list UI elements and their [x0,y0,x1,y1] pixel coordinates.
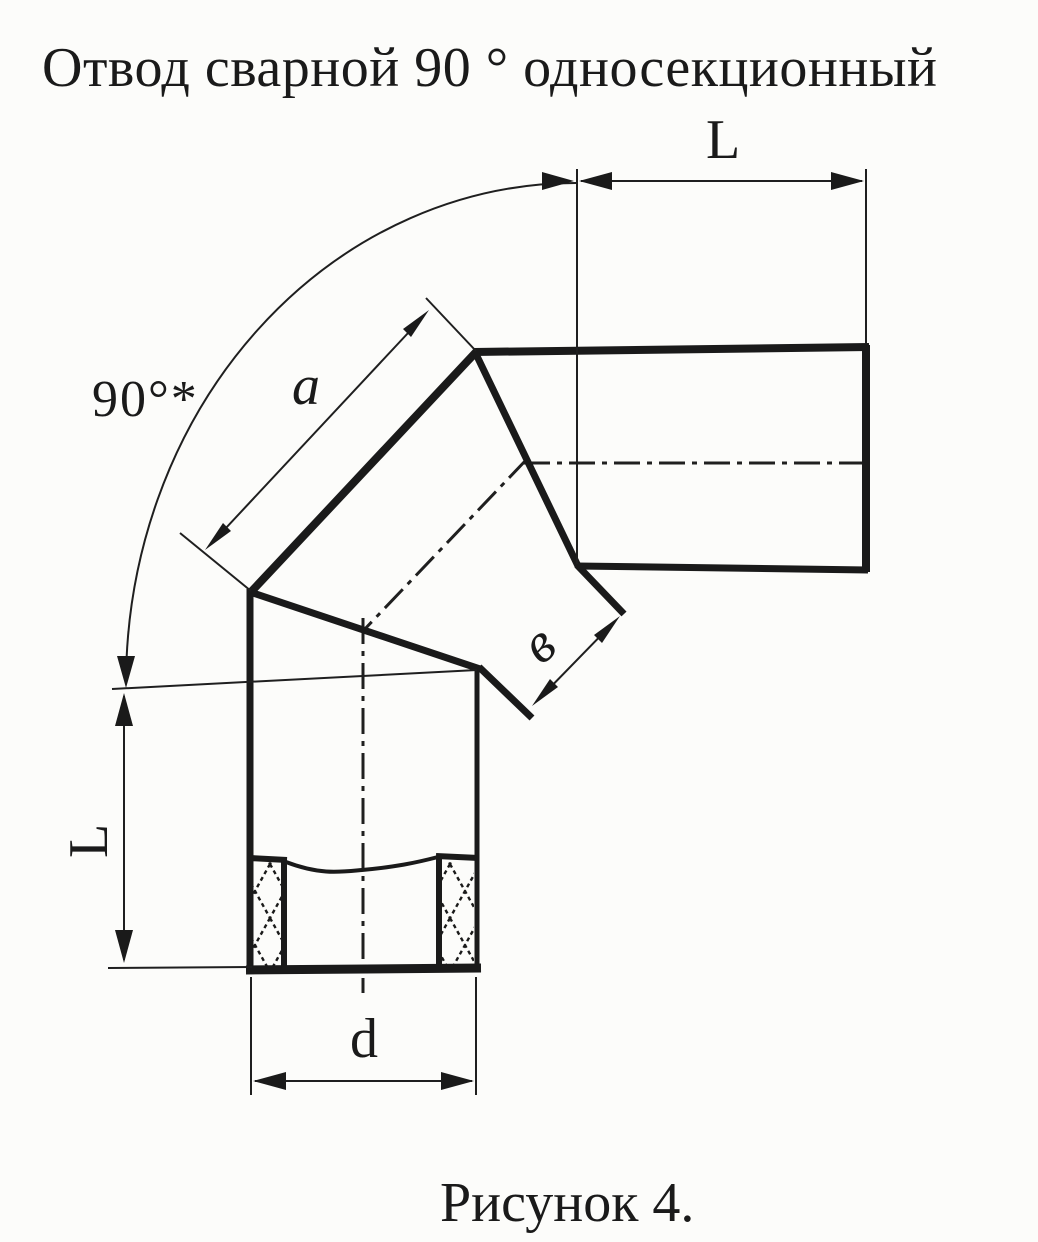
dim-L-top-arrowhead-right [831,172,864,190]
angle-arc-arrowhead-bottom [117,656,135,688]
dimension-a: a [180,298,476,591]
dim-a-label: a [292,355,320,417]
wall-hatch-left-top-edge [249,858,287,860]
angle-arc-arrowhead-top [542,172,574,190]
top-pipe-bottom-edge [577,566,868,570]
dim-d-arrowhead-right [441,1072,474,1090]
dim-a-extension-upper [426,298,476,351]
segment-outer-edge [250,351,477,593]
joint-face-edge-lower [479,667,532,718]
drawing-title: Отвод сварной 90 ° односекционный [42,37,937,99]
dim-L-left-extension-bottom [108,967,252,968]
wall-hatch-left [253,862,281,966]
dim-a-line [211,317,423,544]
angle-arc [126,183,576,684]
bottom-pipe-end-cap [246,968,481,970]
scanned-drawing-page: Отвод сварной 90 ° односекционный Рисуно… [0,0,1038,1242]
dim-d-arrowhead-left [253,1072,286,1090]
dim-v-label: в [510,613,568,676]
dim-L-left-extension-top [112,670,477,689]
angle-dimension: 90°* [92,172,576,688]
dimension-d: d [251,977,476,1095]
joint-face-edge-upper [577,565,624,614]
dim-L-left-label: L [58,824,120,858]
figure-caption: Рисунок 4. [440,1172,694,1234]
centerline-middle-segment [363,459,527,631]
angle-label: 90°* [92,371,199,428]
dim-L-top-arrowhead-left [579,172,612,190]
wall-hatch-right-top-edge [436,856,479,858]
dimension-L-top: L [577,109,866,564]
top-pipe-top-edge [474,347,869,352]
weld-joint-lower [250,592,480,669]
elbow-technical-drawing: Отвод сварной 90 ° односекционный Рисуно… [0,0,1038,1242]
dim-L-top-label: L [706,109,740,171]
weld-joint-upper [475,352,578,566]
dimension-v: в [510,613,620,706]
dim-L-left-arrowhead-top [115,693,133,726]
dim-d-label: d [350,1008,378,1070]
dim-L-left-arrowhead-bottom [115,930,133,963]
wall-hatch-right [442,860,474,965]
